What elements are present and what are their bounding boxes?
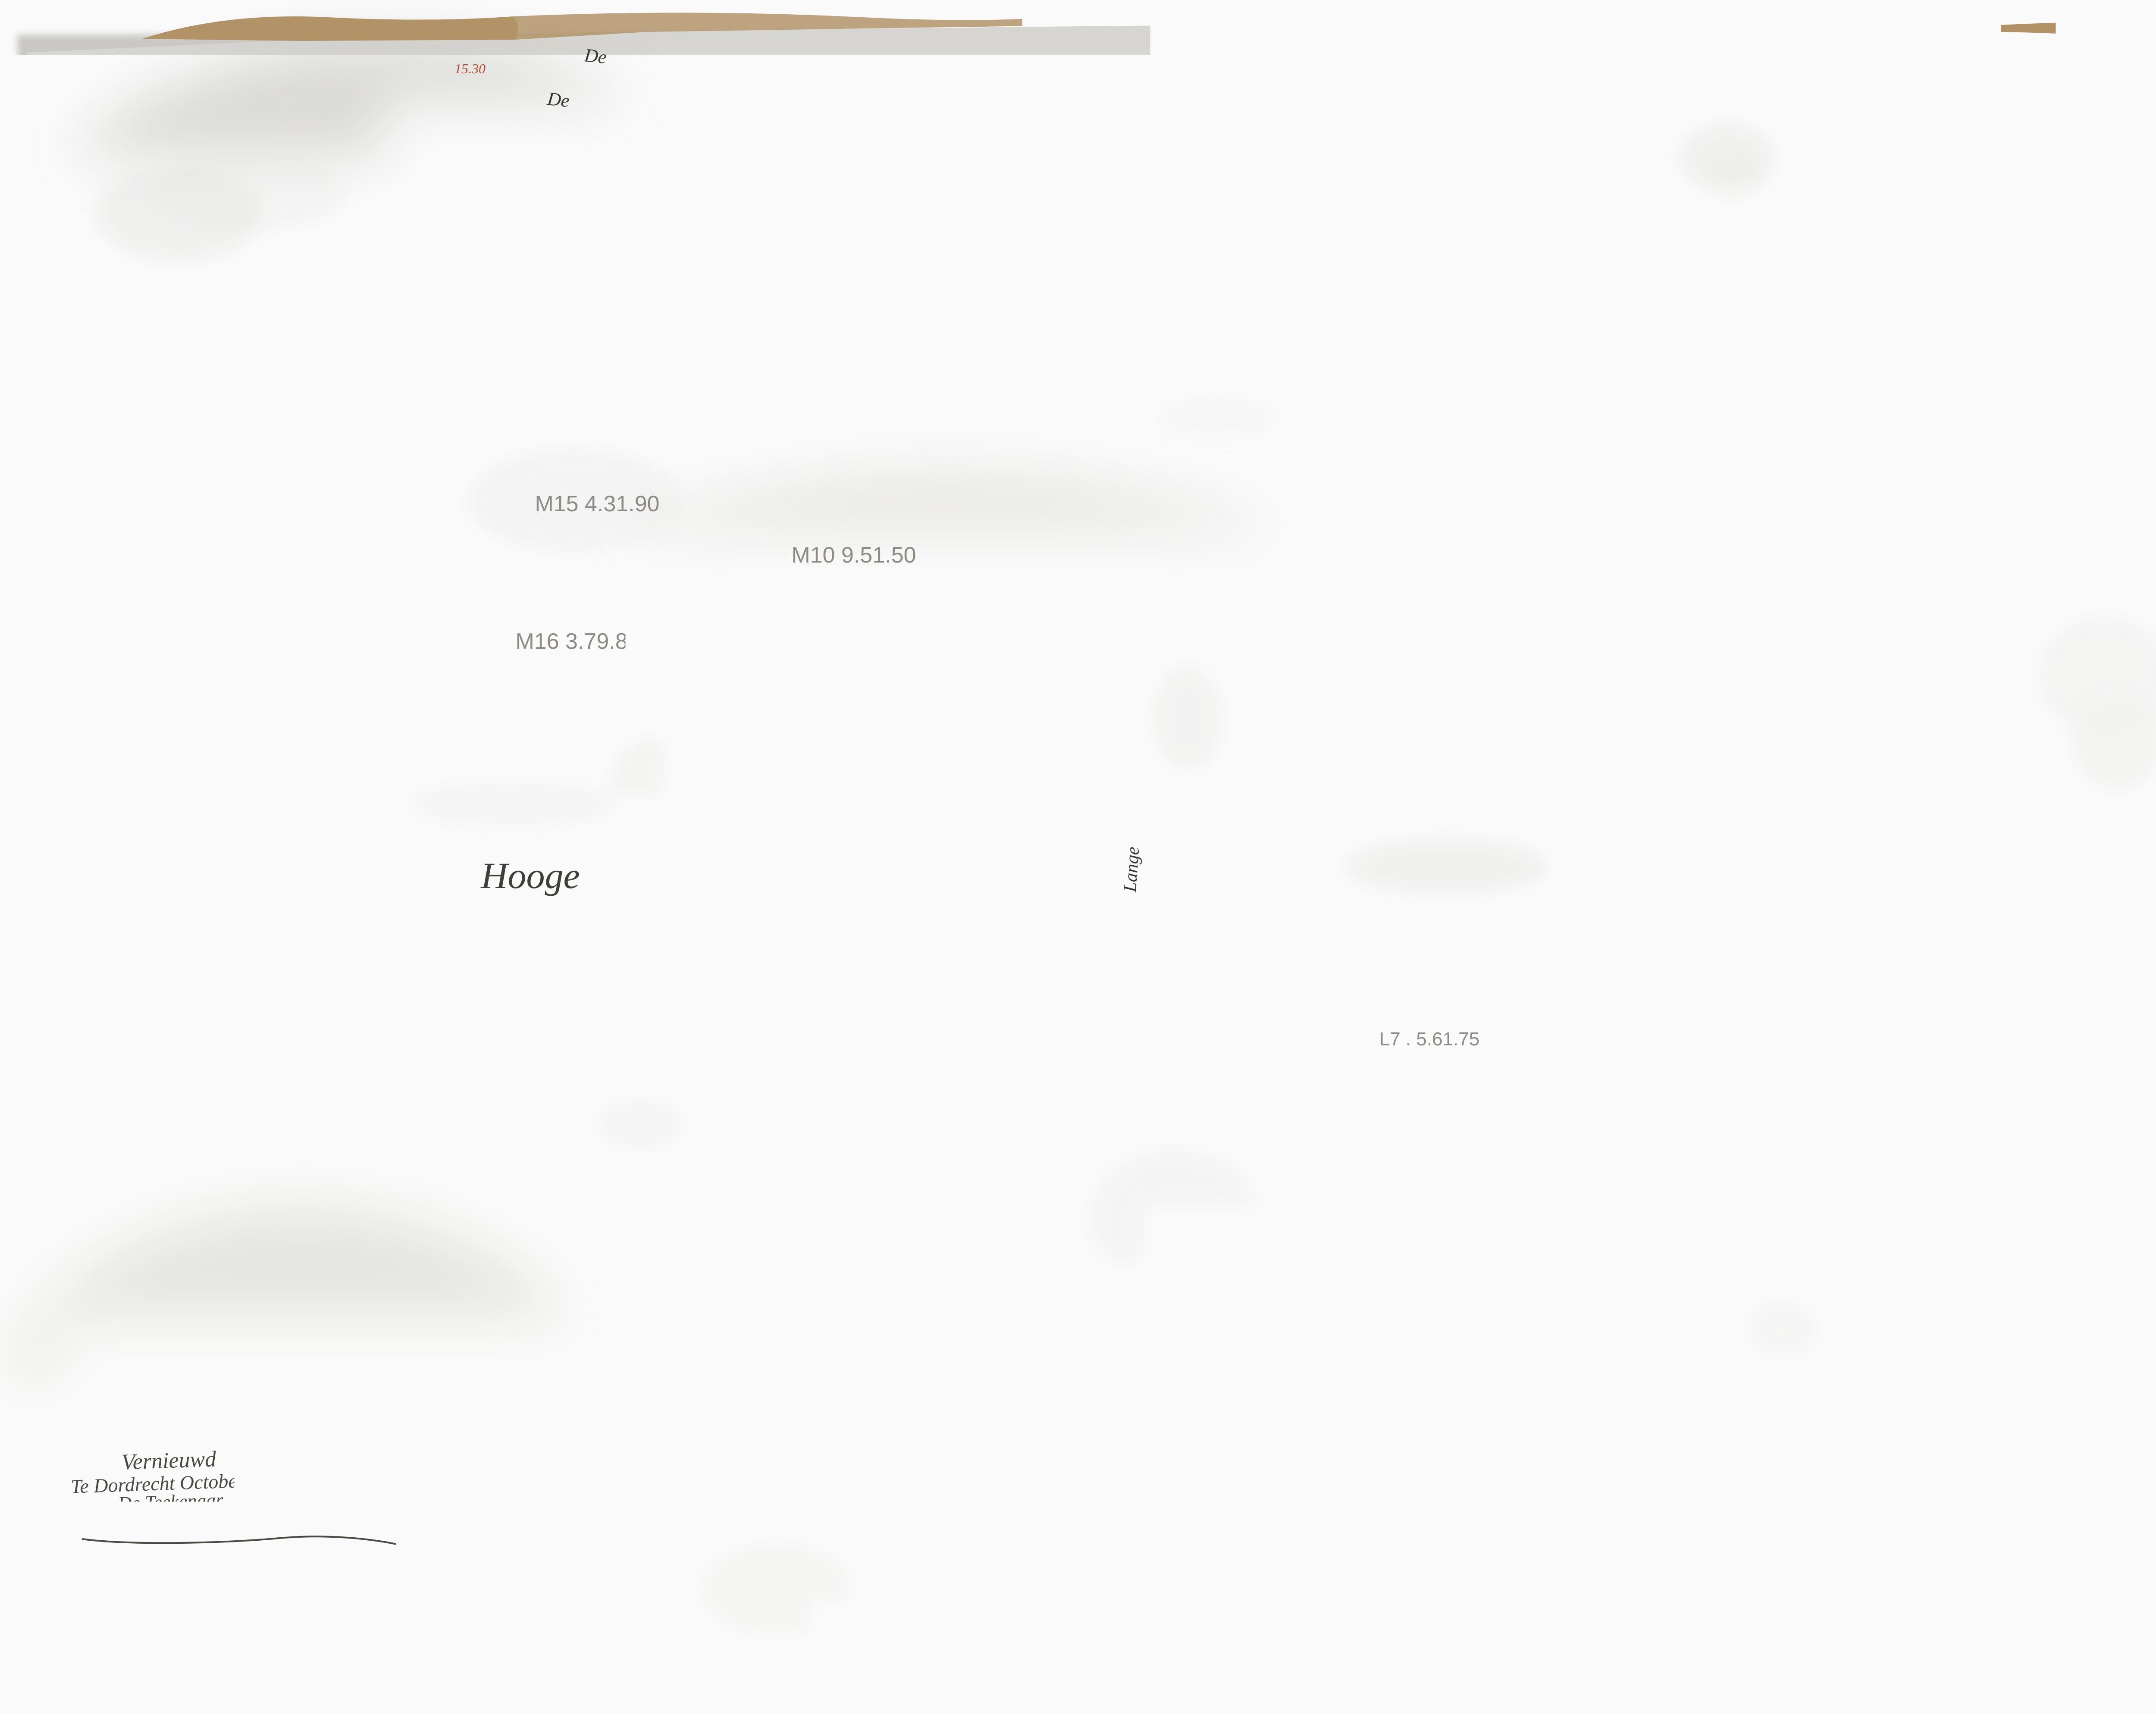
svg-text:1.69.70: 1.69.70 (2088, 921, 2132, 937)
svg-text:J1 4.55.00: J1 4.55.00 (1681, 231, 1774, 253)
svg-text:1.59.50: 1.59.50 (1537, 579, 1578, 594)
svg-text:×: × (752, 968, 761, 984)
svg-text:L8 6.00.10: L8 6.00.10 (1376, 1142, 1466, 1163)
svg-text:1248: 1248 (2144, 1135, 2156, 1147)
svg-text:1249: 1249 (1845, 1222, 1867, 1233)
svg-text:2.29.20: 2.29.20 (746, 1167, 787, 1182)
svg-text:1247: 1247 (737, 468, 760, 480)
svg-text:1.34.80: 1.34.80 (1906, 1572, 1950, 1588)
svg-text:1.97.00: 1.97.00 (571, 261, 612, 276)
svg-text:2.35.40: 2.35.40 (716, 1394, 756, 1409)
svg-text:×: × (749, 855, 758, 871)
svg-text:1.66.50: 1.66.50 (1796, 928, 1840, 944)
svg-text:1349: 1349 (434, 1486, 457, 1498)
svg-text:×: × (747, 515, 757, 531)
svg-text:22.50: 22.50 (554, 169, 585, 184)
svg-text:L9 . 6.33.55: L9 . 6.33.55 (1358, 1256, 1458, 1277)
svg-text:2.25.40: 2.25.40 (413, 1054, 454, 1069)
svg-text:×: × (909, 402, 919, 418)
svg-text:05.80: 05.80 (1580, 240, 1611, 255)
svg-text:2.38.80: 2.38.80 (962, 1167, 1003, 1182)
svg-text:500: 500 (2047, 756, 2063, 768)
svg-text:1.86.20: 1.86.20 (429, 714, 470, 729)
svg-text:507: 507 (744, 801, 761, 814)
svg-text:2.47.40: 2.47.40 (409, 1394, 449, 1409)
svg-text:1.91.60: 1.91.60 (1538, 803, 1578, 818)
svg-text:1.92.00: 1.92.00 (1247, 1042, 1288, 1057)
svg-text:L1 . 1.47.90: L1 . 1.47.90 (1326, 356, 1426, 377)
svg-text:1.79.40: 1.79.40 (976, 1054, 1016, 1069)
svg-text:2.48.40: 2.48.40 (955, 1394, 995, 1409)
svg-text:M2 9.87.40: M2 9.87.40 (1041, 537, 1153, 562)
svg-text:J10 3.21.90: J10 3.21.90 (1855, 923, 1955, 944)
svg-text:J3 3.55.80: J3 3.55.80 (1787, 416, 1876, 438)
svg-text:557: 557 (436, 1373, 453, 1386)
svg-text:×: × (739, 1421, 749, 1437)
svg-text:515: 515 (2117, 1071, 2134, 1082)
svg-text:2.05.20: 2.05.20 (959, 601, 999, 616)
svg-text:×: × (991, 1308, 1001, 1324)
svg-text:1.91.60: 1.91.60 (894, 374, 935, 389)
svg-text:1.93.60: 1.93.60 (411, 827, 451, 842)
svg-text:424: 424 (1319, 1242, 1336, 1255)
svg-text:1.86.20: 1.86.20 (1222, 1270, 1263, 1285)
svg-text:×: × (746, 1535, 756, 1551)
svg-text:448: 448 (1925, 312, 1942, 324)
svg-text:M4 4.07.85: M4 4.07.85 (979, 1105, 1087, 1129)
svg-text:J4 . 3.42.70: J4 . 3.42.70 (1793, 490, 1892, 511)
svg-text:2.73.55: 2.73.55 (1722, 339, 1766, 355)
svg-text:M15 4.31.90: M15 4.31.90 (535, 491, 659, 516)
svg-text:429: 429 (1711, 235, 1727, 246)
svg-text:423: 423 (1309, 1126, 1326, 1138)
svg-text:2.35.40: 2.35.40 (2022, 630, 2066, 646)
svg-text:20.00: 20.00 (2145, 194, 2156, 210)
svg-text:453: 453 (1759, 541, 1776, 552)
svg-text:×: × (428, 1308, 438, 1324)
svg-text:1.75.40: 1.75.40 (1526, 363, 1567, 378)
svg-text:1.93.60: 1.93.60 (1519, 1350, 1559, 1365)
svg-text:1.97.00: 1.97.00 (1254, 697, 1295, 712)
svg-text:1.40.70: 1.40.70 (1772, 854, 1816, 870)
svg-text:1.98.90: 1.98.90 (404, 488, 445, 503)
svg-text:J7 3.21.60: J7 3.21.60 (1828, 707, 1917, 728)
svg-text:2.25.40: 2.25.40 (1884, 250, 1928, 266)
svg-text:Korte: Korte (1086, 1608, 1132, 1630)
svg-text:507: 507 (2110, 1023, 2127, 1035)
svg-text:07.00: 07.00 (2024, 186, 2055, 201)
svg-text:J15 2.99.60: J15 2.99.60 (1978, 1252, 2073, 1272)
svg-text:×: × (1268, 1382, 1278, 1398)
svg-text:541: 541 (979, 1259, 996, 1271)
svg-text:1.78.80: 1.78.80 (418, 1507, 459, 1522)
svg-text:2.02.00: 2.02.00 (2044, 776, 2088, 792)
svg-text:1246: 1246 (2034, 683, 2056, 694)
svg-text:1250: 1250 (727, 1030, 749, 1043)
svg-text:1253: 1253 (1883, 1386, 1905, 1397)
svg-text:503: 503 (426, 576, 443, 588)
svg-text:504: 504 (423, 805, 440, 818)
svg-text:×: × (1267, 1179, 1277, 1195)
svg-text:560: 560 (751, 1373, 768, 1386)
svg-text:15.00: 15.00 (2116, 200, 2146, 214)
svg-text:2.27.40: 2.27.40 (1730, 257, 1774, 273)
svg-text:2.71.10: 2.71.10 (1735, 563, 1779, 579)
svg-text:2.08.50: 2.08.50 (1249, 1572, 1290, 1587)
svg-text:L14 . 7.20.30: L14 . 7.20.30 (1590, 1501, 1701, 1523)
svg-text:M16 3.79.80: M16 3.79.80 (515, 629, 640, 654)
svg-text:2.02.00: 2.02.00 (965, 1507, 1005, 1522)
svg-text:1253: 1253 (740, 1143, 762, 1156)
svg-text:3: 3 (116, 26, 131, 59)
svg-text:Boomweg: Boomweg (1996, 1564, 2071, 1587)
svg-text:M5 . 2.76.10: M5 . 2.76.10 (934, 1235, 1050, 1258)
svg-text:508: 508 (2077, 827, 2093, 839)
svg-text:M6. 2.57.20: M6. 2.57.20 (913, 1361, 1023, 1384)
svg-text:562: 562 (1333, 454, 1350, 466)
svg-text:W † U: W † U (1059, 209, 1104, 228)
svg-text:1.40.70: 1.40.70 (1225, 369, 1266, 385)
svg-text:499: 499 (2096, 967, 2112, 979)
svg-text:Hooge: Hooge (480, 855, 580, 896)
svg-text:Polder: Polder (1554, 854, 1646, 891)
svg-text:J17. 3.65.50: J17. 3.65.50 (1992, 1417, 2101, 1440)
svg-text:525: 525 (989, 1143, 1006, 1155)
svg-text:519: 519 (1801, 972, 1817, 983)
svg-text:J8. 3.15.50: J8. 3.15.50 (1836, 779, 1930, 800)
svg-text:D: D (25, 985, 45, 1014)
svg-text:1.92.00: 1.92.00 (974, 488, 1015, 503)
svg-text:×: × (989, 968, 999, 984)
svg-text:M13 8.01.70: M13 8.01.70 (672, 1417, 787, 1439)
svg-text:1.78.80: 1.78.80 (1517, 919, 1558, 934)
svg-text:J19. 330.80: J19. 330.80 (2087, 1575, 2156, 1597)
svg-text:515: 515 (438, 919, 455, 931)
svg-text:G: G (407, 1655, 429, 1687)
svg-text:1.92.00: 1.92.00 (1860, 1245, 1904, 1260)
svg-text:952: 952 (2005, 536, 2021, 548)
svg-text:×: × (437, 855, 447, 871)
svg-text:1.91.60: 1.91.60 (2104, 1091, 2148, 1107)
svg-text:2.11.80: 2.11.80 (1257, 1154, 1296, 1169)
svg-text:×: × (443, 1535, 453, 1551)
svg-text:J12 1.45.60: J12 1.45.60 (1945, 1017, 2040, 1038)
svg-text:×: × (1296, 1481, 1306, 1497)
svg-text:F: F (25, 1540, 42, 1570)
svg-text:J9. 3.07.70: J9. 3.07.70 (1847, 851, 1941, 872)
svg-text:1247: 1247 (1770, 760, 1792, 772)
svg-text:538: 538 (741, 1261, 758, 1273)
svg-text:1.96.00: 1.96.00 (982, 714, 1022, 729)
svg-text:×: × (747, 1195, 757, 1211)
svg-text:2.27.40: 2.27.40 (989, 941, 1029, 956)
svg-text:×: × (1289, 951, 1299, 967)
svg-text:418: 418 (1308, 669, 1325, 682)
svg-text:519: 519 (743, 691, 760, 704)
svg-text:1.86.20: 1.86.20 (1875, 1408, 1919, 1424)
svg-text:1266: 1266 (969, 1485, 992, 1497)
svg-text:2.11.80: 2.11.80 (748, 601, 787, 616)
svg-text:2.38.80: 2.38.80 (1733, 490, 1777, 506)
svg-text:1251: 1251 (1866, 1301, 1887, 1313)
svg-text:1249: 1249 (441, 1030, 464, 1043)
svg-text:2.06.40: 2.06.40 (743, 941, 783, 956)
svg-text:L4 . 3.83.70: L4 . 3.83.70 (1334, 691, 1434, 712)
svg-text:×: × (991, 1195, 1001, 1211)
svg-text:M14 514.60: M14 514.60 (463, 280, 581, 305)
svg-text:2.08.50: 2.08.50 (418, 941, 458, 956)
svg-text:500: 500 (984, 466, 1000, 479)
svg-text:Meter.: Meter. (1552, 1665, 1589, 1681)
svg-text:1244: 1244 (2029, 610, 2050, 621)
svg-text:Boomweg: Boomweg (1200, 290, 1223, 362)
svg-text:×: × (571, 289, 581, 305)
svg-text:×: × (442, 629, 452, 644)
svg-text:1.68.70: 1.68.70 (545, 374, 586, 389)
svg-text:1.98.90: 1.98.90 (1235, 926, 1276, 941)
svg-text:954: 954 (903, 237, 920, 249)
svg-text:524: 524 (981, 1368, 997, 1381)
svg-text:416: 416 (1322, 557, 1339, 569)
svg-text:×: × (987, 515, 997, 531)
svg-text:1251: 1251 (983, 1033, 1005, 1046)
svg-text:7: 7 (1171, 27, 1186, 60)
svg-text:512: 512 (991, 800, 1008, 812)
svg-text:1245: 1245 (909, 353, 931, 366)
svg-text:Vernieuwd: Vernieuwd (121, 1447, 217, 1475)
svg-text:420: 420 (1294, 781, 1311, 794)
svg-text:503: 503 (1776, 832, 1792, 843)
svg-text:1265: 1265 (749, 1479, 771, 1492)
svg-text:516: 516 (2088, 901, 2105, 912)
svg-text:M17 13.52.90: M17 13.52.90 (479, 945, 611, 970)
svg-text:426: 426 (1292, 1428, 1309, 1440)
svg-text:J11 2.84.70: J11 2.84.70 (1918, 979, 2012, 999)
svg-text:1.87.70: 1.87.70 (1773, 146, 1814, 162)
svg-text:9: 9 (1702, 30, 1716, 63)
svg-text:1245: 1245 (1757, 687, 1779, 699)
svg-text:2.33.80: 2.33.80 (1522, 691, 1562, 706)
svg-text:1248: 1248 (985, 920, 1007, 932)
svg-text:De: De (241, 1631, 263, 1652)
svg-text:520: 520 (1834, 1140, 1850, 1151)
svg-text:1.78.80: 1.78.80 (718, 488, 759, 503)
svg-text:1.82.85: 1.82.85 (428, 1167, 468, 1182)
svg-text:De Teekenaar: De Teekenaar (117, 1489, 224, 1514)
svg-text:×: × (1291, 395, 1301, 411)
svg-text:×: × (984, 1082, 993, 1098)
svg-text:451: 451 (1731, 467, 1748, 479)
svg-text:J18. 367.20: J18. 367.20 (2006, 1501, 2109, 1524)
svg-text:J van Doorn: J van Doorn (113, 1511, 231, 1541)
svg-text:×: × (1272, 507, 1282, 523)
svg-text:×: × (578, 402, 588, 418)
svg-text:M7 1.48.90: M7 1.48.90 (872, 1421, 967, 1442)
svg-text:1.34.80: 1.34.80 (731, 827, 772, 842)
svg-text:2.11.80: 2.11.80 (1863, 1324, 1905, 1340)
svg-text:449: 449 (1732, 392, 1749, 403)
svg-text:×: × (748, 1082, 758, 1098)
svg-text:2.60.40: 2.60.40 (1973, 483, 2017, 499)
svg-text:2.71.10: 2.71.10 (736, 1281, 777, 1296)
svg-text:2.34.90: 2.34.90 (1536, 1035, 1577, 1051)
svg-text:520: 520 (750, 916, 767, 929)
svg-text:1.98.90: 1.98.90 (1834, 1163, 1878, 1179)
svg-text:×: × (434, 1195, 444, 1211)
svg-text:2.33.80: 2.33.80 (887, 261, 927, 276)
svg-text:1.95.30: 1.95.30 (970, 827, 1011, 842)
svg-text:512: 512 (1832, 1075, 1849, 1087)
svg-text:C: C (27, 708, 46, 738)
svg-text:02.20: 02.20 (2141, 272, 2156, 286)
svg-text:E: E (27, 1263, 45, 1292)
svg-text:×: × (1296, 1296, 1306, 1312)
svg-text:L7 . 5.61.75: L7 . 5.61.75 (1379, 1029, 1479, 1050)
svg-text:1246: 1246 (423, 466, 445, 479)
svg-text:3.18.60: 3.18.60 (960, 1281, 1001, 1296)
svg-text:×: × (988, 1421, 998, 1437)
svg-text:3.72.30: 3.72.30 (956, 171, 997, 186)
svg-text:1.34.80: 1.34.80 (1228, 1456, 1269, 1471)
svg-text:M1 . 2.09.70: M1 . 2.09.70 (1064, 248, 1179, 271)
svg-text:1.66.50: 1.66.50 (1250, 482, 1290, 497)
svg-text:L12 . 4.33.20: L12 . 4.33.20 (1594, 1444, 1705, 1465)
svg-text:2.47.40: 2.47.40 (1770, 637, 1814, 653)
svg-text:2.29.20: 2.29.20 (1956, 408, 2000, 424)
svg-text:J6. 329.00: J6. 329.00 (1815, 633, 1908, 655)
svg-text:J13 . 4.41.50: J13 . 4.41.50 (1951, 1099, 2056, 1120)
svg-text:×: × (437, 742, 447, 758)
svg-text:NUMANSDORP: NUMANSDORP (70, 232, 526, 293)
svg-text:425: 425 (1329, 1329, 1345, 1341)
svg-text:1.95.30: 1.95.30 (1496, 1449, 1536, 1464)
svg-text:B: B (27, 485, 45, 514)
svg-text:×: × (742, 1308, 752, 1324)
svg-text:422: 422 (1327, 1014, 1344, 1026)
svg-text:8: 8 (1438, 30, 1452, 63)
svg-text:1252: 1252 (438, 1143, 461, 1156)
svg-text:541: 541 (1921, 1549, 1937, 1561)
svg-text:1.79.40: 1.79.40 (1909, 332, 1953, 348)
svg-text:2.73.55: 2.73.55 (735, 1054, 775, 1069)
svg-text:2.33.80: 2.33.80 (2112, 1044, 2156, 1060)
svg-text:63.-5: 63.-5 (633, 203, 661, 219)
svg-text:1.78.80: 1.78.80 (2053, 703, 2097, 719)
svg-text:2.05.20: 2.05.20 (1493, 1148, 1534, 1163)
svg-text:511: 511 (1809, 905, 1824, 916)
svg-text:1.78.80: 1.78.80 (2131, 1156, 2156, 1172)
svg-text:1.68.70: 1.68.70 (1247, 809, 1288, 824)
svg-text:De: De (546, 88, 570, 111)
svg-text:J5 3.41.90: J5 3.41.90 (1809, 562, 1898, 583)
svg-text:L2 . 5.05.50: L2 . 5.05.50 (1330, 468, 1430, 489)
svg-text:1.97.00: 1.97.00 (1822, 1051, 1866, 1067)
svg-text:×: × (906, 289, 916, 305)
svg-text:×: × (442, 1082, 452, 1098)
svg-text:1.82.50: 1.82.50 (734, 714, 775, 729)
svg-text:528: 528 (1910, 1467, 1926, 1479)
svg-text:×: × (427, 515, 437, 531)
svg-text:L15 . 6.61.70: L15 . 6.61.70 (1411, 1562, 1522, 1583)
svg-text:452: 452 (1971, 463, 1988, 475)
svg-text:952: 952 (584, 235, 601, 248)
svg-text:1.75.40: 1.75.40 (2077, 848, 2121, 863)
svg-text:1.59.50: 1.59.50 (2085, 988, 2129, 1004)
svg-text:15.30: 15.30 (454, 61, 486, 76)
svg-text:5: 5 (641, 27, 655, 60)
svg-text:6: 6 (903, 31, 917, 63)
svg-text:J2. 3.07.40: J2. 3.07.40 (1604, 343, 1698, 364)
svg-text:L10 . 12.82.10: L10 . 12.82.10 (1351, 1370, 1473, 1392)
svg-text:499: 499 (982, 689, 999, 701)
svg-text:×: × (438, 968, 448, 984)
svg-text:508: 508 (744, 582, 761, 594)
svg-text:427: 427 (1324, 1544, 1341, 1557)
svg-text:2.73.10: 2.73.10 (1890, 184, 1931, 199)
svg-text:×: × (1280, 723, 1290, 738)
svg-text:×: × (743, 742, 753, 758)
svg-text:J16 5.10.40: J16 5.10.40 (1984, 1336, 2088, 1358)
svg-text:1.68.70: 1.68.70 (1827, 1098, 1871, 1114)
svg-text:10: 10 (1969, 27, 1998, 60)
svg-text:3.18.60: 3.18.60 (2016, 557, 2061, 572)
svg-text:Supplement: Supplement (134, 816, 288, 857)
svg-text:×: × (991, 855, 1001, 871)
svg-text:1.77.00: 1.77.00 (734, 1507, 774, 1522)
svg-text:4: 4 (361, 32, 376, 65)
svg-text:1.96.00: 1.96.00 (1907, 1490, 1951, 1506)
svg-text:×: × (429, 1421, 439, 1437)
svg-text:×: × (1291, 610, 1301, 626)
svg-text:×: × (1275, 1067, 1285, 1083)
svg-text:528: 528 (436, 1254, 452, 1267)
svg-text:2.60.40: 2.60.40 (410, 1281, 451, 1296)
svg-text:×: × (742, 629, 752, 644)
svg-text:2.06.40: 2.06.40 (1526, 1566, 1566, 1581)
svg-text:1244: 1244 (580, 350, 602, 363)
svg-text:2: 2 (32, 610, 45, 639)
svg-text:1.77.00: 1.77.00 (1784, 783, 1828, 799)
svg-text:2.27.70: 2.27.70 (1678, 212, 1720, 227)
svg-text:954: 954 (1752, 614, 1769, 626)
svg-text:×: × (992, 629, 1002, 644)
svg-text:×: × (1293, 1598, 1303, 1614)
svg-text:2.48.40: 2.48.40 (1784, 710, 1828, 726)
svg-text:1.82.50: 1.82.50 (1505, 1264, 1546, 1279)
svg-text:A: A (27, 211, 46, 240)
svg-text:M18 b54.45: M18 b54.45 (451, 1421, 560, 1444)
svg-text:447: 447 (1714, 316, 1731, 328)
svg-text:1.69.70: 1.69.70 (1513, 475, 1553, 490)
svg-text:L6. 4.08.25: L6. 4.08.25 (1395, 913, 1490, 935)
svg-text:516: 516 (432, 689, 449, 702)
svg-text:H: H (1125, 1675, 1147, 1707)
svg-text:De: De (583, 44, 608, 68)
svg-text:×: × (994, 1535, 1004, 1551)
svg-text:×: × (989, 742, 999, 758)
svg-text:1.59.30: 1.59.30 (1823, 995, 1867, 1010)
svg-text:L5 . 4.01.30: L5 . 4.01.30 (1354, 804, 1454, 826)
svg-text:M12. 6.71.60: M12. 6.71.60 (707, 1128, 833, 1152)
svg-text:M10 9.51.50: M10 9.51.50 (791, 543, 916, 568)
svg-text:446: 446 (1882, 230, 1898, 242)
svg-text:1.82.85: 1.82.85 (1714, 415, 1758, 431)
svg-text:×: × (1291, 835, 1301, 851)
svg-text:2.34.90: 2.34.90 (413, 601, 454, 616)
svg-text:504: 504 (1816, 1028, 1832, 1039)
svg-text:511: 511 (983, 574, 999, 587)
svg-text:Lange: Lange (1120, 846, 1143, 893)
